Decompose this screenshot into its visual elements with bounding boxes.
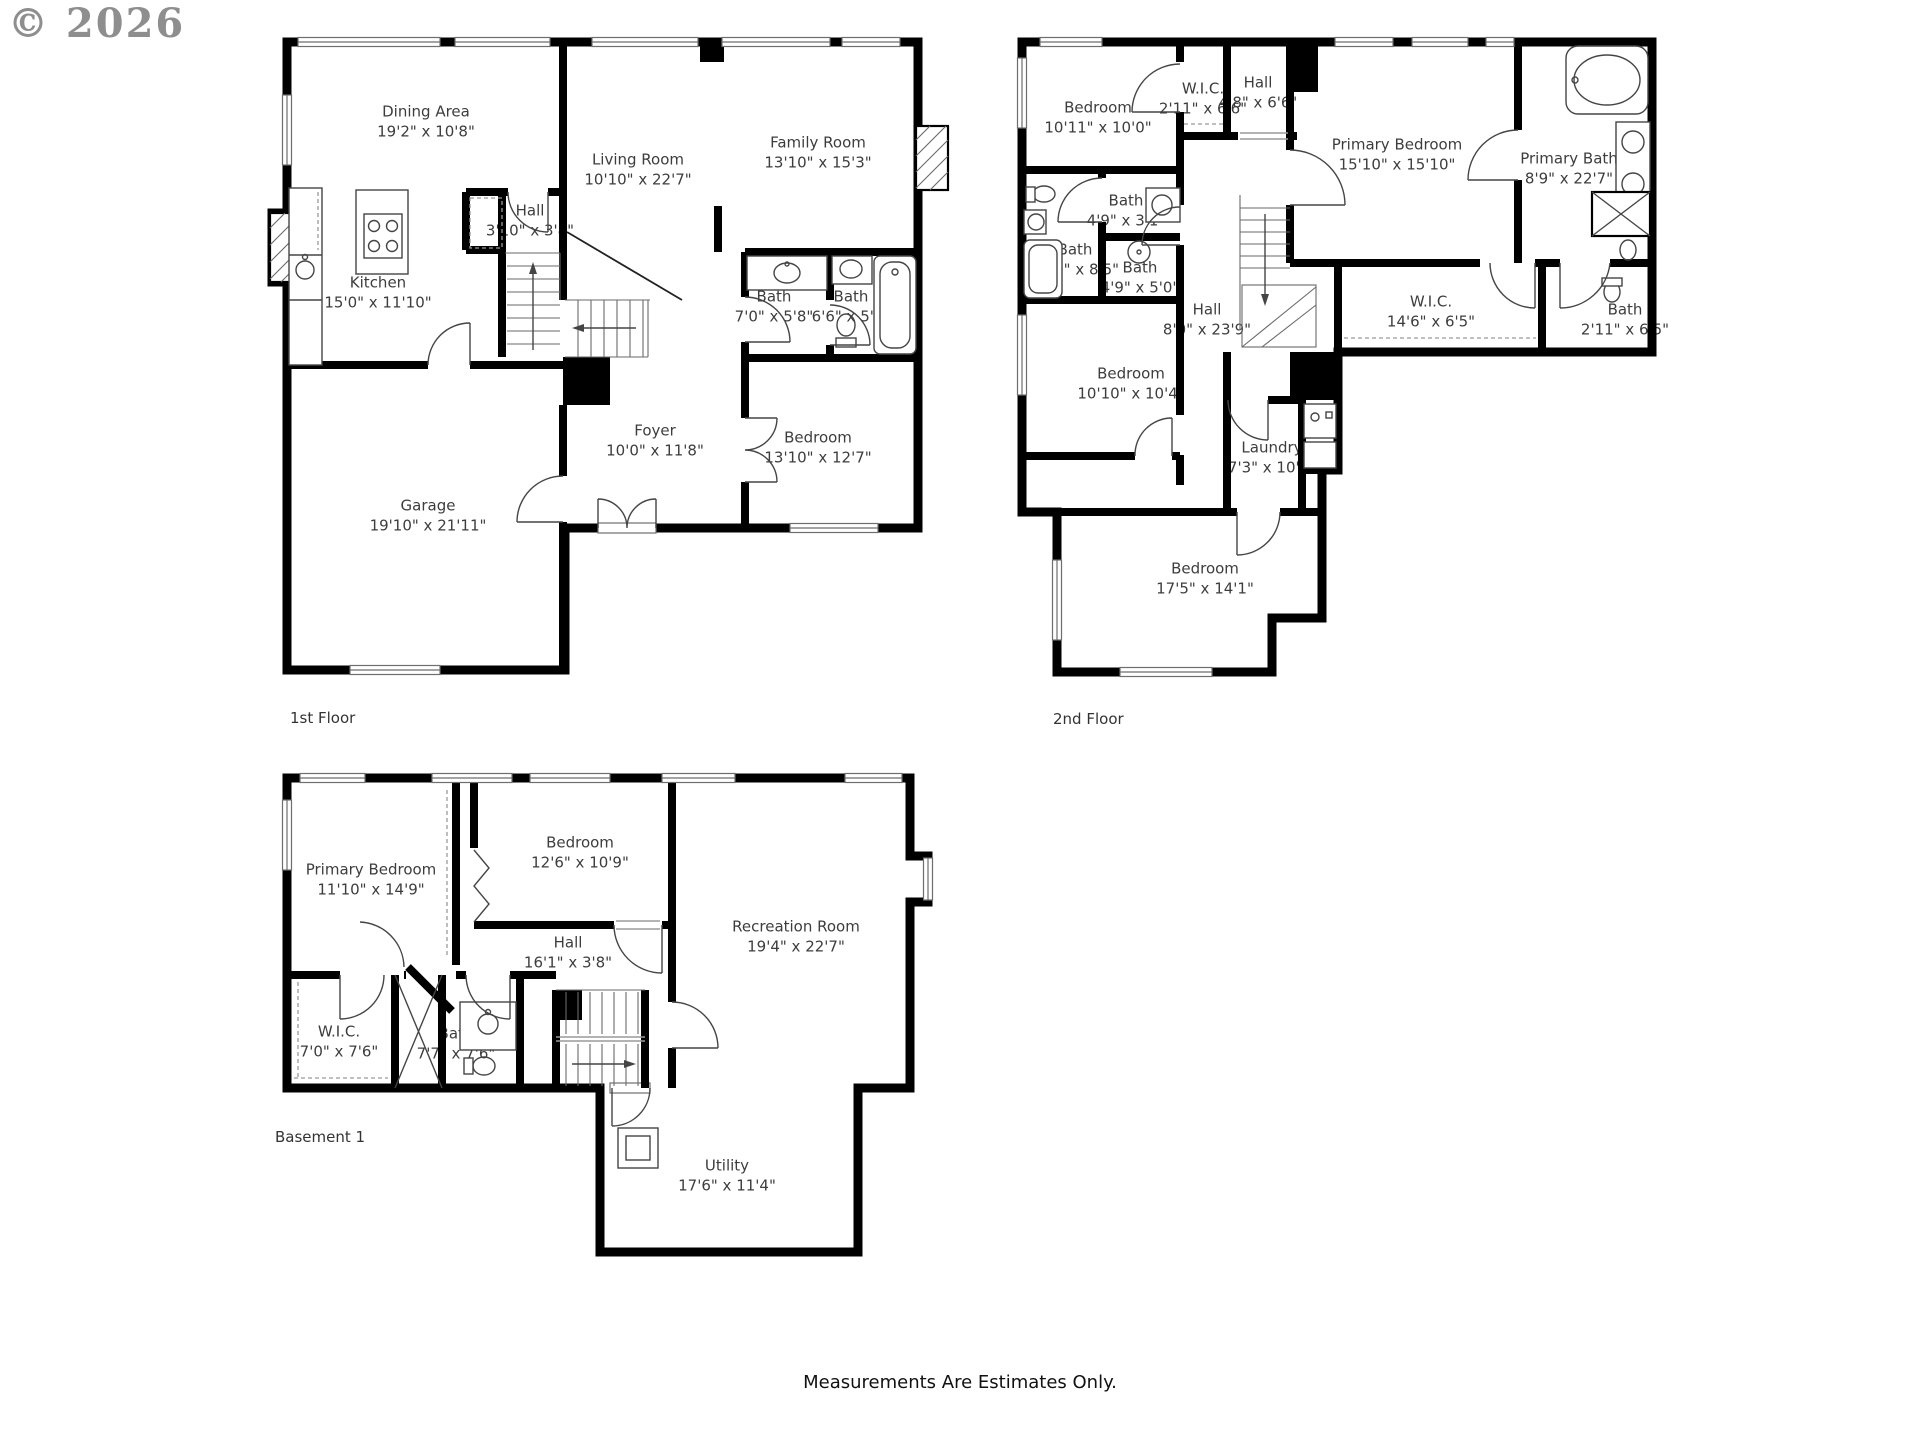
room-dims: 10'10" x 22'7" <box>584 170 691 190</box>
room-label-bath-b1: Bath7'7" x 7'6" <box>417 1025 496 1064</box>
room-name: Bedroom <box>1044 99 1151 119</box>
room-name: W.I.C. <box>300 1023 379 1043</box>
room-name: Utility <box>678 1157 776 1177</box>
room-name: Bedroom <box>1156 560 1254 580</box>
copyright-watermark: © 2026 <box>8 0 185 47</box>
bifold-door <box>474 850 489 922</box>
stairs <box>556 990 645 1086</box>
room-name: Bedroom <box>764 429 871 449</box>
floor-title-1st: 1st Floor <box>290 709 355 727</box>
wall-block <box>1290 352 1338 400</box>
room-name: Foyer <box>606 422 704 442</box>
sink-icon <box>1622 173 1644 195</box>
room-label-bedroom-f2-mid: Bedroom10'10" x 10'4" <box>1077 365 1184 404</box>
room-name: Hall <box>1219 74 1298 94</box>
wall-block <box>556 990 582 1020</box>
room-label-garage: Garage19'10" x 21'11" <box>370 497 487 536</box>
measurements-disclaimer: Measurements Are Estimates Only. <box>0 1372 1920 1393</box>
room-label-hall-f2-main: Hall8'0" x 23'9" <box>1163 301 1251 340</box>
water-heater-icon <box>618 1128 658 1168</box>
room-name: Hall <box>486 202 574 222</box>
room-dims: 4'9" x 3'1" <box>1087 211 1166 231</box>
room-label-primary-bath: Primary Bath8'9" x 22'7" <box>1520 150 1618 189</box>
room-label-bedroom-f2-tl: Bedroom10'11" x 10'0" <box>1044 99 1151 138</box>
room-dims: 13'10" x 15'3" <box>764 153 871 173</box>
sink-icon <box>774 263 800 283</box>
room-name: Bath <box>735 288 814 308</box>
room-name: Bath <box>1031 241 1119 261</box>
room-dims: 8'0" x 23'9" <box>1163 320 1251 340</box>
room-dims: 7'7" x 7'6" <box>417 1044 496 1064</box>
room-dims: 7'0" x 7'6" <box>300 1042 379 1062</box>
stairs <box>505 232 682 357</box>
room-dims: 10'10" x 10'4" <box>1077 384 1184 404</box>
room-dims: 14'6" x 6'5" <box>1387 312 1475 332</box>
room-name: Primary Bedroom <box>306 861 437 881</box>
room-dims: 10'0" x 11'8" <box>606 441 704 461</box>
vanity <box>1616 122 1650 204</box>
room-name: Hall <box>1163 301 1251 321</box>
room-name: Family Room <box>764 134 871 154</box>
room-name: Garage <box>370 497 487 517</box>
room-label-wic-b1: W.I.C.7'0" x 7'6" <box>300 1023 379 1062</box>
room-name: Bedroom <box>531 834 629 854</box>
stair-railing <box>567 232 682 300</box>
wall-block <box>700 38 724 62</box>
sink-icon <box>840 260 862 278</box>
room-name: Recreation Room <box>732 918 860 938</box>
room-dims: 8'9" x 22'7" <box>1520 169 1618 189</box>
room-label-bath-f2-d: Bath2'11" x 6'5" <box>1581 301 1669 340</box>
room-label-bath-f2-a: Bath4'9" x 3'1" <box>1087 192 1166 231</box>
room-label-living-room: Living Room10'10" x 22'7" <box>584 151 691 190</box>
room-label-primary-bedroom-f2: Primary Bedroom15'10" x 15'10" <box>1332 136 1463 175</box>
room-label-bedroom-b1: Bedroom12'6" x 10'9" <box>531 834 629 873</box>
room-dims: 7'3" x 10'5" <box>1228 458 1316 478</box>
room-name: Bath <box>1087 192 1166 212</box>
room-dims: 2'11" x 6'5" <box>1581 320 1669 340</box>
room-dims: 4'8" x 6'6" <box>1219 93 1298 113</box>
room-dims: 13'10" x 12'7" <box>764 448 871 468</box>
room-dims: 10'11" x 10'0" <box>1044 118 1151 138</box>
room-name: Bath <box>1101 259 1180 279</box>
room-label-utility: Utility17'6" x 11'4" <box>678 1157 776 1196</box>
room-label-bath-f1-left: Bath7'0" x 5'8" <box>735 288 814 327</box>
room-label-family-room: Family Room13'10" x 15'3" <box>764 134 871 173</box>
room-dims: 11'10" x 14'9" <box>306 880 437 900</box>
doors <box>428 192 870 528</box>
room-name: Bedroom <box>1077 365 1184 385</box>
room-label-hall-f1: Hall3'10" x 3'8" <box>486 202 574 241</box>
sink-icon <box>1028 214 1044 230</box>
vanity <box>747 256 827 290</box>
stove-icon <box>364 214 402 258</box>
room-label-dining-area: Dining Area19'2" x 10'8" <box>377 103 475 142</box>
room-name: Dining Area <box>377 103 475 123</box>
room-name: Primary Bedroom <box>1332 136 1463 156</box>
shower-icon <box>1592 192 1650 236</box>
room-label-foyer: Foyer10'0" x 11'8" <box>606 422 704 461</box>
room-dims: 17'6" x 11'4" <box>678 1176 776 1196</box>
room-name: Hall <box>524 934 612 954</box>
room-dims: 16'1" x 3'8" <box>524 953 612 973</box>
washer-icon <box>1304 404 1336 438</box>
room-label-primary-bedroom-b1: Primary Bedroom11'10" x 14'9" <box>306 861 437 900</box>
floor-title-2nd: 2nd Floor <box>1053 710 1124 728</box>
room-dims: 17'5" x 14'1" <box>1156 579 1254 599</box>
room-dims: 7'0" x 5'8" <box>735 307 814 327</box>
toilet-icon <box>1604 282 1620 302</box>
room-label-recreation-room: Recreation Room19'4" x 22'7" <box>732 918 860 957</box>
angled-wall <box>408 967 452 1011</box>
room-dims: 6'6" x 5'8" <box>812 307 891 327</box>
room-name: Bath <box>417 1025 496 1045</box>
room-label-bath-f1-right: Bath6'6" x 5'8" <box>812 288 891 327</box>
bathtub-icon <box>1566 46 1648 114</box>
room-label-laundry: Laundry7'3" x 10'5" <box>1228 439 1316 478</box>
toilet-icon <box>1620 240 1636 260</box>
room-label-bath-f2-c: Bath4'9" x 5'0" <box>1101 259 1180 298</box>
room-label-hall-b1: Hall16'1" x 3'8" <box>524 934 612 973</box>
room-dims: 15'0" x 11'10" <box>324 293 431 313</box>
room-name: Laundry <box>1228 439 1316 459</box>
room-name: Bath <box>1581 301 1669 321</box>
room-dims: 4'9" x 5'0" <box>1101 278 1180 298</box>
stairs <box>1240 133 1316 347</box>
room-name: W.I.C. <box>1387 293 1475 313</box>
sink-icon <box>1622 131 1644 153</box>
room-label-wic-f2-main: W.I.C.14'6" x 6'5" <box>1387 293 1475 332</box>
vanity <box>832 256 872 284</box>
kitchen-counter <box>289 188 322 365</box>
room-dims: 19'4" x 22'7" <box>732 937 860 957</box>
room-name: Bath <box>812 288 891 308</box>
toilet-icon <box>1033 186 1055 202</box>
room-name: Living Room <box>584 151 691 171</box>
room-label-kitchen: Kitchen15'0" x 11'10" <box>324 274 431 313</box>
kitchen-island <box>356 190 408 274</box>
room-dims: 3'10" x 3'8" <box>486 221 574 241</box>
room-label-bedroom-f2-bottom: Bedroom17'5" x 14'1" <box>1156 560 1254 599</box>
room-name: Kitchen <box>324 274 431 294</box>
room-label-bedroom-f1: Bedroom13'10" x 12'7" <box>764 429 871 468</box>
floorplan-drawing <box>0 0 1920 1440</box>
room-dims: 15'10" x 15'10" <box>1332 155 1463 175</box>
wall-block <box>563 357 610 405</box>
room-dims: 12'6" x 10'9" <box>531 853 629 873</box>
room-dims: 19'2" x 10'8" <box>377 122 475 142</box>
room-label-hall-f2-top: Hall4'8" x 6'6" <box>1219 74 1298 113</box>
sink-icon <box>296 261 314 279</box>
floor-title-basement: Basement 1 <box>275 1128 365 1146</box>
room-dims: 19'10" x 21'11" <box>370 516 487 536</box>
room-name: Primary Bath <box>1520 150 1618 170</box>
